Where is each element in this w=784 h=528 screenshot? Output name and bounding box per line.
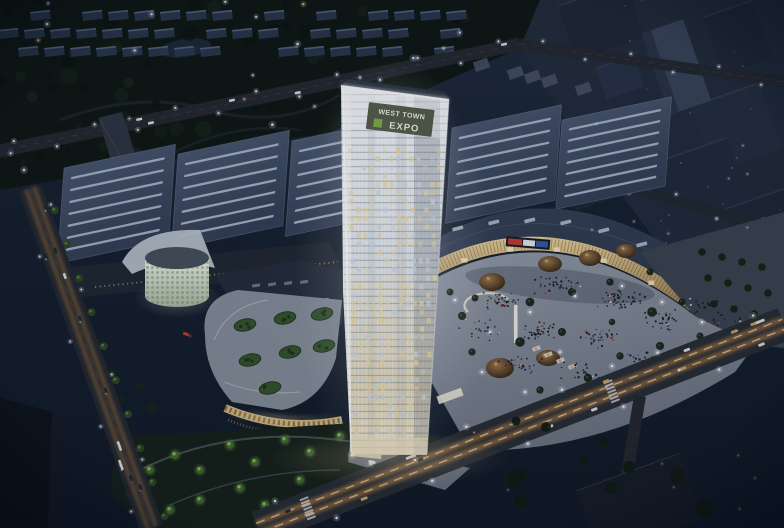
scene-canvas: WEST TOWN EXPO (0, 0, 784, 528)
rendering-image: WEST TOWN EXPO (0, 0, 784, 528)
vignette (0, 0, 784, 528)
